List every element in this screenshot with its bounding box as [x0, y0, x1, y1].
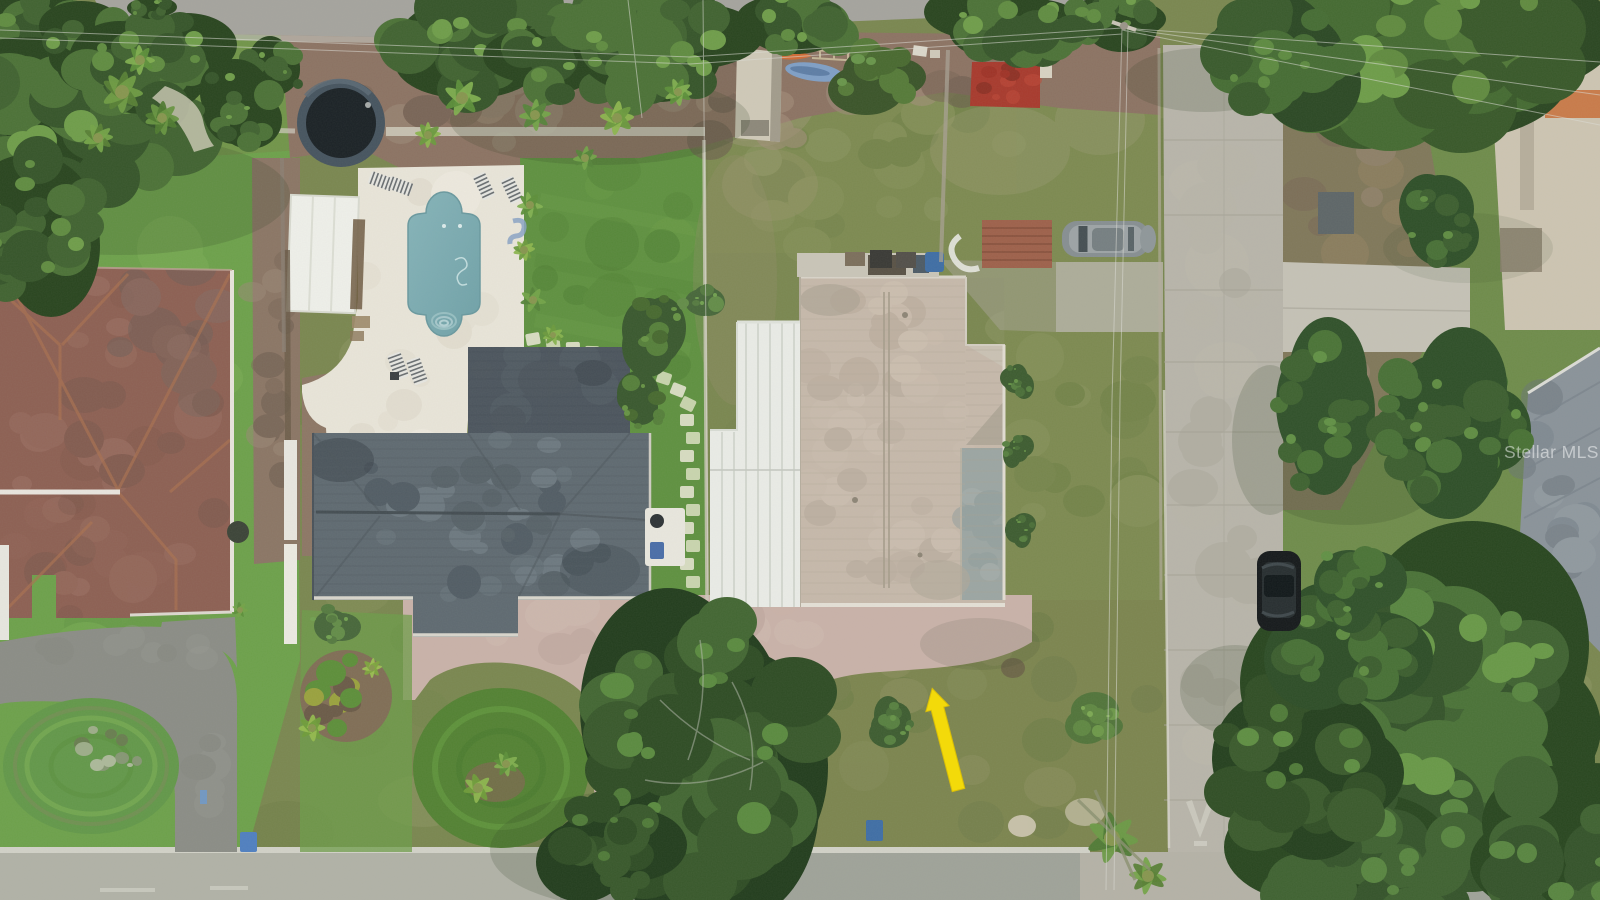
svg-text:Stellar MLS: Stellar MLS — [1504, 442, 1599, 462]
